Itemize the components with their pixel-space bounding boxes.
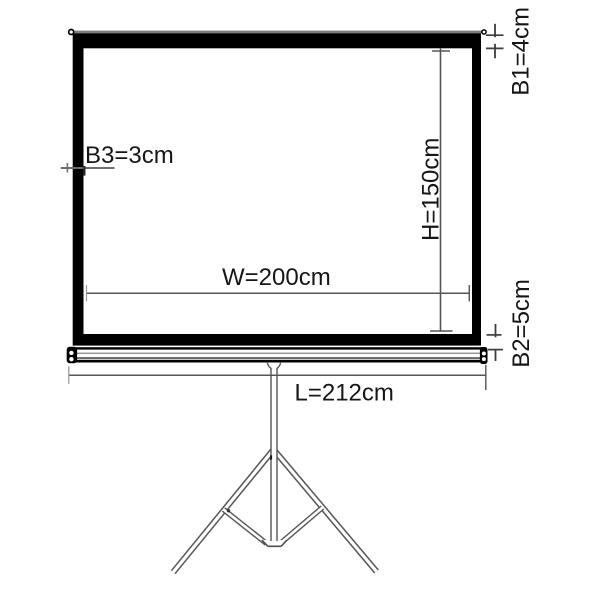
svg-text:B3=3cm: B3=3cm <box>85 142 174 169</box>
svg-text:B1=4cm: B1=4cm <box>508 7 535 96</box>
svg-text:W=200cm: W=200cm <box>222 264 331 291</box>
svg-text:B2=5cm: B2=5cm <box>508 279 535 368</box>
svg-text:L=212cm: L=212cm <box>295 380 394 407</box>
svg-text:H=150cm: H=150cm <box>418 138 445 241</box>
